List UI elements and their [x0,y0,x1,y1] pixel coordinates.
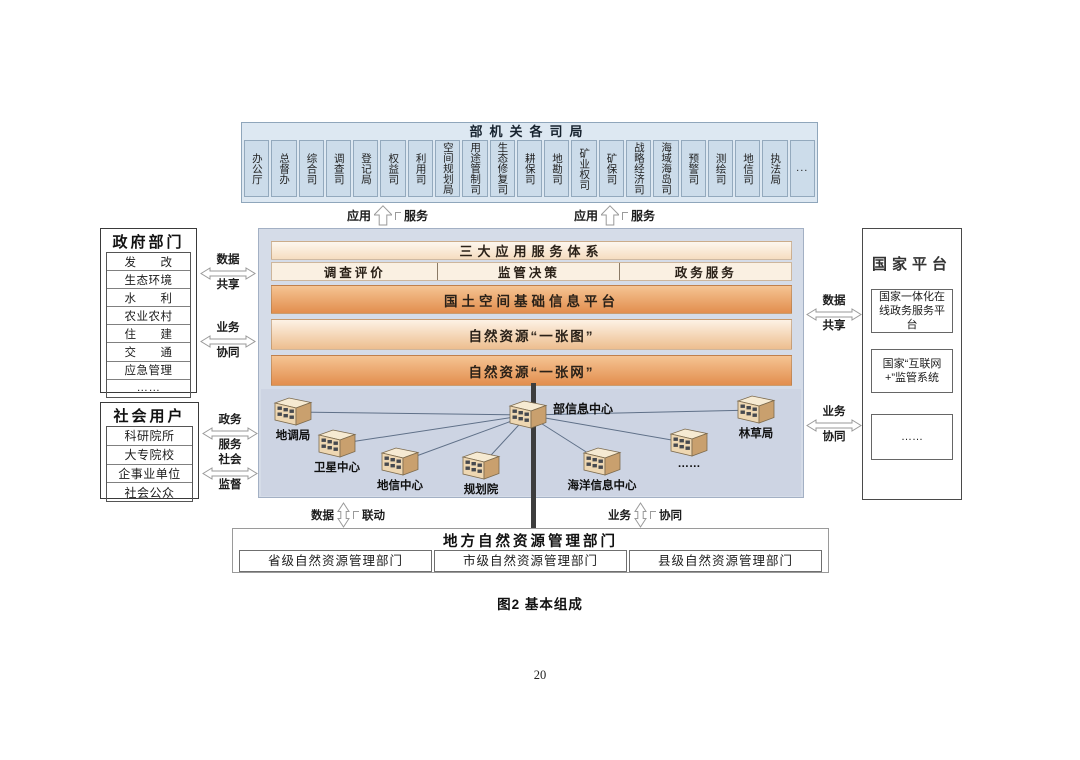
arrow-label: 共享 [823,321,846,333]
national-platform-item-ellipsis: …… [871,414,953,460]
node-label-ellipsis: …… [678,458,701,470]
data-linkage-arrow: 数据 联动 [311,502,385,528]
server-building-icon [508,399,548,429]
gov-box-title: 政府部门 [101,229,196,251]
arrow-label: 协同 [659,507,682,523]
bracket-mark [395,212,401,220]
ministry-columns: 办公厅 总督办 综合司 调查司 登记局 权益司 利用司 空间规划局 用途管制司 … [242,140,817,199]
three-application-systems-band: 三大应用服务体系 [271,241,792,260]
arrow-label: 业务 [823,407,846,419]
ministry-dept: 海域海岛司 [653,140,678,197]
arrow-label: 数据 [217,255,240,267]
data-sharing-arrow-right: 数据 共享 [805,296,863,332]
double-arrow-icon [806,419,862,432]
arrow-label: 服务 [631,207,655,224]
spatial-info-platform-band: 国土空间基础信息平台 [271,285,792,314]
arrow-label: 业务 [608,507,631,523]
application-service-arrow-right: 应用 服务 [574,205,655,226]
figure-caption: 图2 基本组成 [0,593,1080,613]
node-label: 海洋信息中心 [568,477,637,493]
business-collaboration-arrow: 业务 协同 [199,323,257,359]
gov-row: 应急管理 [107,362,190,380]
gov-box-list: 发 改 生态环境 水 利 农业农村 住 建 交 通 应急管理 …… [106,252,191,398]
local-departments-box: 地方自然资源管理部门 省级自然资源管理部门 市级自然资源管理部门 县级自然资源管… [232,528,829,573]
ministry-dept-ellipsis: ... [790,140,815,197]
bracket-mark [622,212,628,220]
business-collaboration-arrow-right: 业务 协同 [805,407,863,443]
ministry-box-title: 部机关各司局 [242,123,817,140]
ministry-dept: 矿业权司 [571,140,596,197]
server-building-icon [461,450,501,480]
application-service-arrow-left: 应用 服务 [347,205,428,226]
arrow-label: 共享 [217,280,240,292]
business-collaboration-arrow-bottom: 业务 协同 [608,502,682,528]
arrow-label: 数据 [823,296,846,308]
hub-label: 部信息中心 [553,400,613,417]
node-label: 地信中心 [377,477,423,493]
social-box-title: 社会用户 [101,403,198,425]
double-arrow-icon [200,267,256,280]
arrow-label: 政务 [219,415,242,427]
double-arrow-icon [202,427,258,440]
arrow-label: 监督 [219,480,242,492]
vertical-double-arrow-icon [634,502,647,528]
ministry-dept: 用途管制司 [462,140,487,197]
gov-row: 发 改 [107,253,190,271]
ministry-dept: 登记局 [353,140,378,197]
social-row: 大专院校 [107,446,192,465]
ministry-departments-box: 部机关各司局 办公厅 总督办 综合司 调查司 登记局 权益司 利用司 空间规划局… [241,122,818,203]
server-building-icon [317,428,357,458]
gov-row: 住 建 [107,325,190,343]
social-row: 科研院所 [107,427,192,446]
arrow-label: 应用 [347,207,371,224]
network-node: 林草局 [714,394,798,441]
service-cell: 调查评价 [272,263,437,280]
arrow-label: 应用 [574,207,598,224]
node-label: 林草局 [739,425,774,441]
ministry-dept: 地信司 [735,140,760,197]
gov-row: 生态环境 [107,271,190,289]
ministry-dept: 矿保司 [599,140,624,197]
data-sharing-arrow: 数据 共享 [199,255,257,291]
ministry-dept: 生态修复司 [490,140,515,197]
up-arrow-icon [374,205,392,226]
page-number: 20 [0,668,1080,683]
national-platform-box: 国家平台 国家一体化在线政务服务平台 国家“互联网+”监管系统 …… [862,228,962,500]
node-label: 规划院 [464,481,499,497]
arrow-label: 服务 [404,207,428,224]
service-categories-band: 调查评价 监管决策 政务服务 [271,262,792,281]
server-building-icon [380,446,420,476]
gov-row: 农业农村 [107,307,190,325]
national-platform-item: 国家一体化在线政务服务平台 [871,289,953,333]
arrow-label: 服务 [219,440,242,452]
social-supervision-arrow: 社会 监督 [201,455,259,491]
ministry-dept: 预警司 [681,140,706,197]
social-box-list: 科研院所 大专院校 企事业单位 社会公众 [106,426,193,502]
arrow-label: 社会 [219,455,242,467]
ministry-dept: 利用司 [408,140,433,197]
one-map-band: 自然资源“一张图” [271,319,792,350]
government-departments-box: 政府部门 发 改 生态环境 水 利 农业农村 住 建 交 通 应急管理 …… [100,228,197,393]
server-building-icon [582,446,622,476]
local-dept-cell: 市级自然资源管理部门 [434,550,627,572]
document-page: 部机关各司局 办公厅 总督办 综合司 调查司 登记局 权益司 利用司 空间规划局… [0,0,1080,760]
local-box-cells: 省级自然资源管理部门 市级自然资源管理部门 县级自然资源管理部门 [239,550,822,572]
network-node: 规划院 [439,450,523,497]
one-network-band: 自然资源“一张网” [271,355,792,386]
national-platform-item: 国家“互联网+”监管系统 [871,349,953,393]
ministry-dept: 战略经济司 [626,140,651,197]
bracket-mark [353,511,359,519]
social-row: 企事业单位 [107,465,192,484]
ministry-dept: 耕保司 [517,140,542,197]
network-node: 海洋信息中心 [560,446,644,493]
up-arrow-icon [601,205,619,226]
national-box-title: 国家平台 [863,253,961,274]
local-dept-cell: 省级自然资源管理部门 [239,550,432,572]
double-arrow-icon [200,335,256,348]
network-node: 地信中心 [358,446,442,493]
local-dept-cell: 县级自然资源管理部门 [629,550,822,572]
double-arrow-icon [806,308,862,321]
arrow-label: 数据 [311,507,334,523]
ministry-dept: 执法局 [762,140,787,197]
local-box-title: 地方自然资源管理部门 [233,529,828,549]
gov-row-ellipsis: …… [107,380,190,397]
service-cell: 政务服务 [619,263,791,280]
social-users-box: 社会用户 科研院所 大专院校 企事业单位 社会公众 [100,402,199,499]
gov-row: 交 通 [107,343,190,361]
ministry-dept: 办公厅 [244,140,269,197]
server-building-icon [273,396,313,426]
node-label: 卫星中心 [314,459,360,475]
social-row: 社会公众 [107,483,192,501]
server-building-icon [736,394,776,424]
ministry-dept: 综合司 [299,140,324,197]
gov-row: 水 利 [107,289,190,307]
arrow-label: 联动 [362,507,385,523]
ministry-dept: 测绘司 [708,140,733,197]
arrow-label: 协同 [217,348,240,360]
double-arrow-icon [202,467,258,480]
ministry-dept: 调查司 [326,140,351,197]
service-cell: 监管决策 [437,263,619,280]
ministry-dept: 空间规划局 [435,140,460,197]
arrow-label: 业务 [217,323,240,335]
server-building-icon [669,427,709,457]
bracket-mark [650,511,656,519]
ministry-dept: 权益司 [380,140,405,197]
ministry-dept: 地勘司 [544,140,569,197]
vertical-double-arrow-icon [337,502,350,528]
arrow-label: 协同 [823,432,846,444]
ministry-dept: 总督办 [271,140,296,197]
